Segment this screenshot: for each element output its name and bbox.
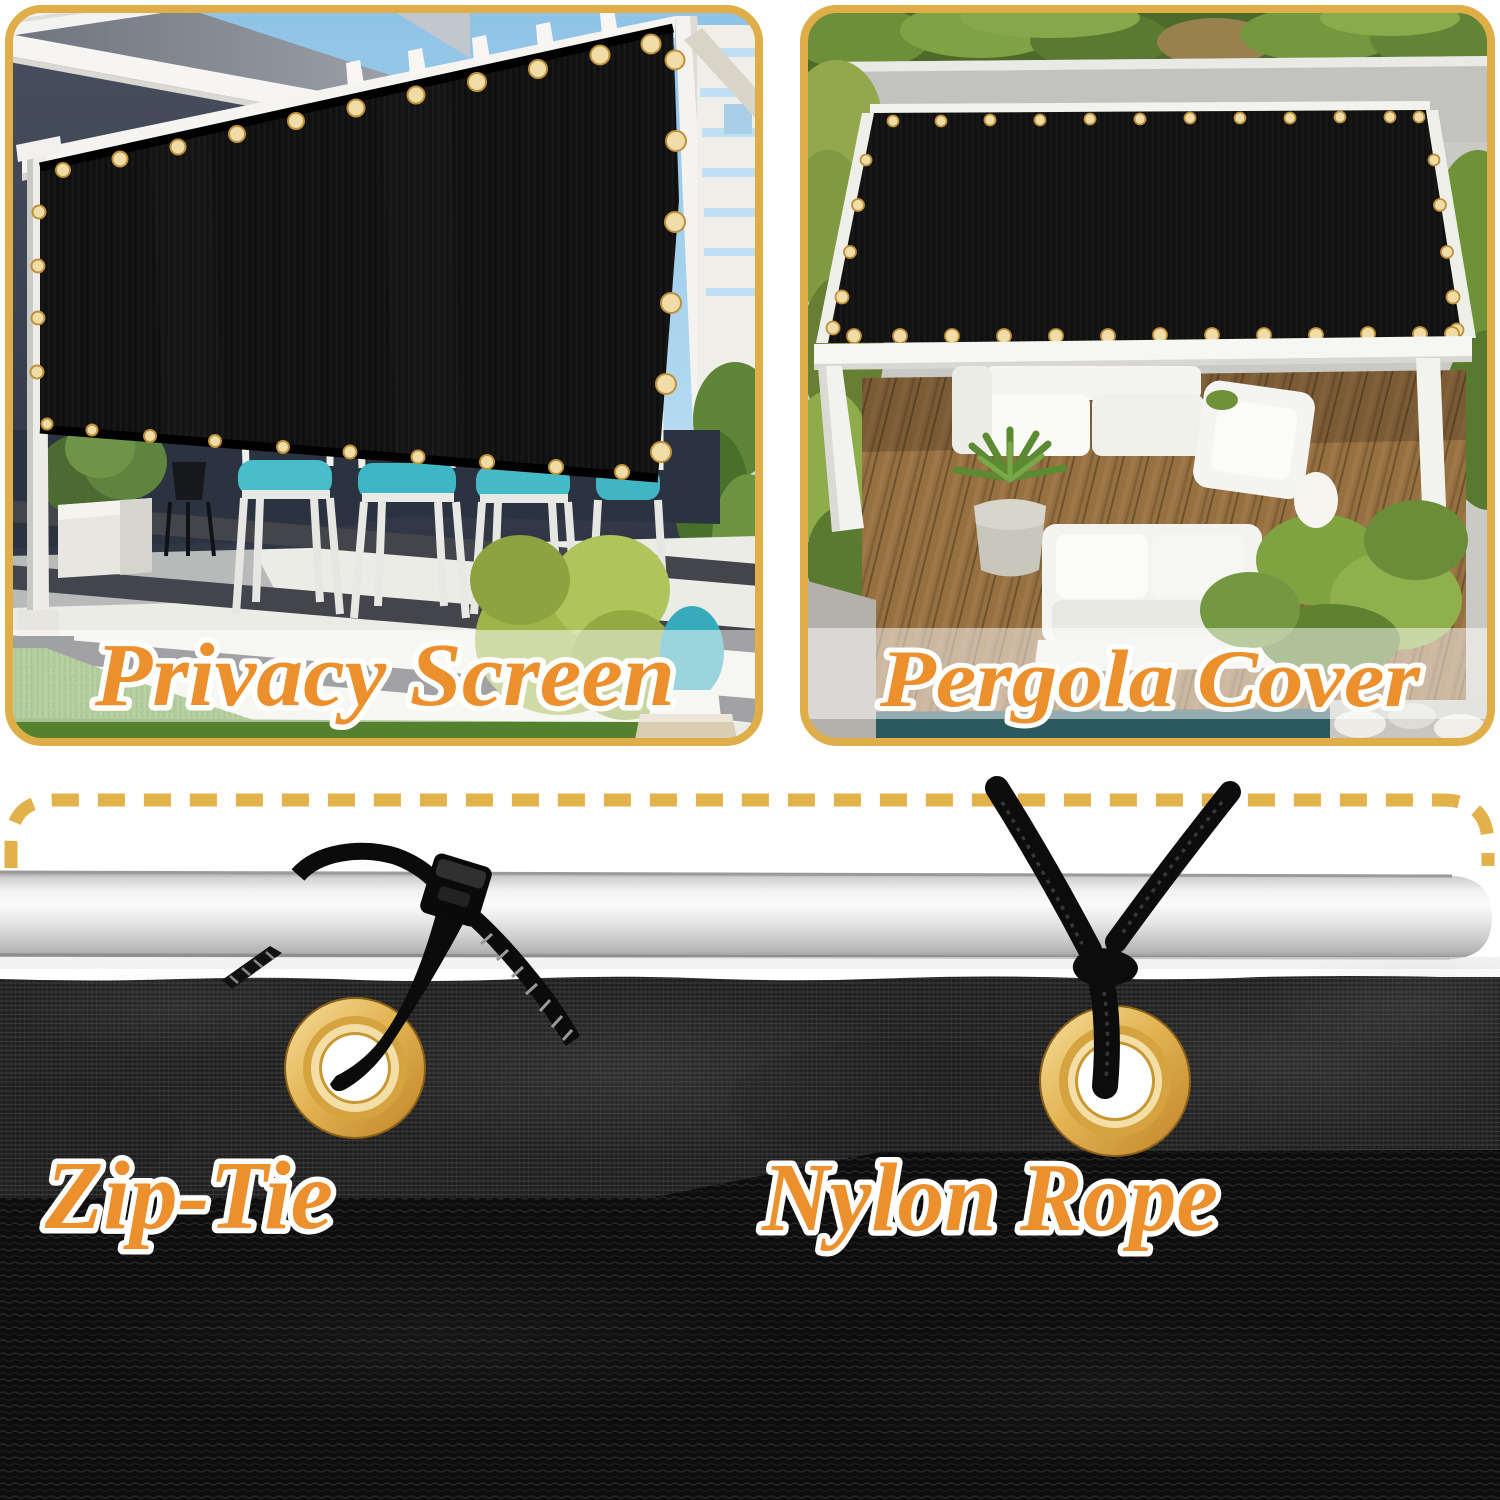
svg-text:Pergola Cover: Pergola Cover [879,633,1421,724]
svg-text:Nylon Rope: Nylon Rope [761,1144,1218,1251]
svg-text:Privacy Screen: Privacy Screen [94,626,675,725]
svg-text:Zip-Tie: Zip-Tie [44,1142,333,1249]
